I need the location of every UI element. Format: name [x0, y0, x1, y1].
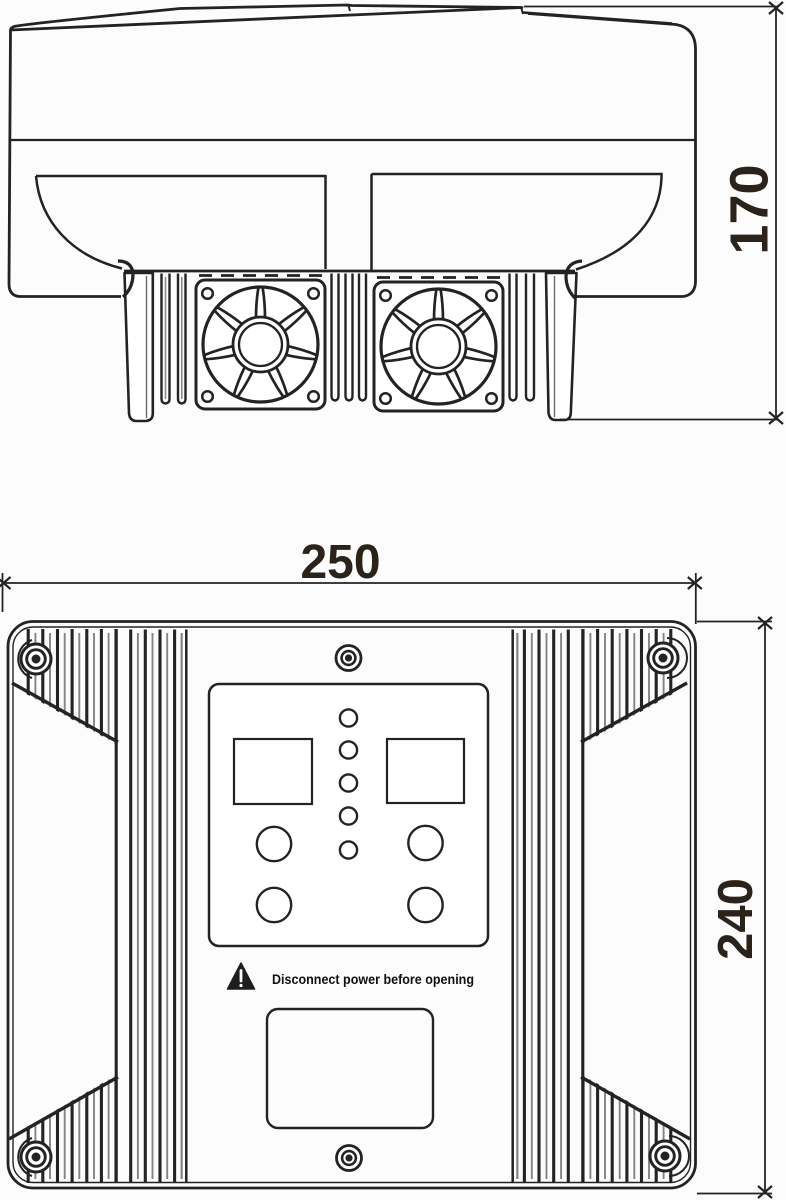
svg-text:170: 170 [720, 164, 780, 254]
svg-text:240: 240 [709, 878, 763, 960]
svg-text:250: 250 [300, 536, 380, 589]
svg-text:Disconnect power before openin: Disconnect power before opening [272, 971, 474, 987]
